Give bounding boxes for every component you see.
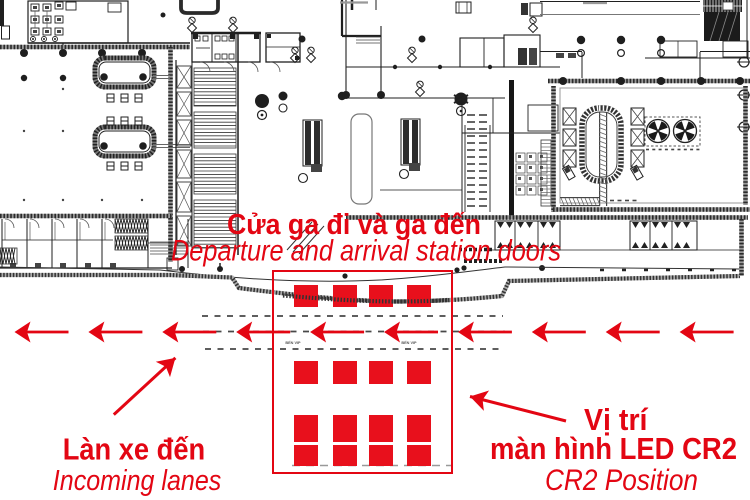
svg-text:BẾN VIP: BẾN VIP — [285, 340, 301, 345]
svg-text:Departure and arrival station: Departure and arrival station doors — [171, 235, 561, 268]
svg-text:Làn xe đến: Làn xe đến — [63, 432, 206, 467]
svg-text:BẾN VIP: BẾN VIP — [401, 340, 417, 345]
svg-text:Incoming lanes: Incoming lanes — [53, 465, 222, 497]
svg-text:CR2 Position: CR2 Position — [545, 464, 698, 497]
svg-text:màn hình LED CR2: màn hình LED CR2 — [490, 432, 737, 466]
